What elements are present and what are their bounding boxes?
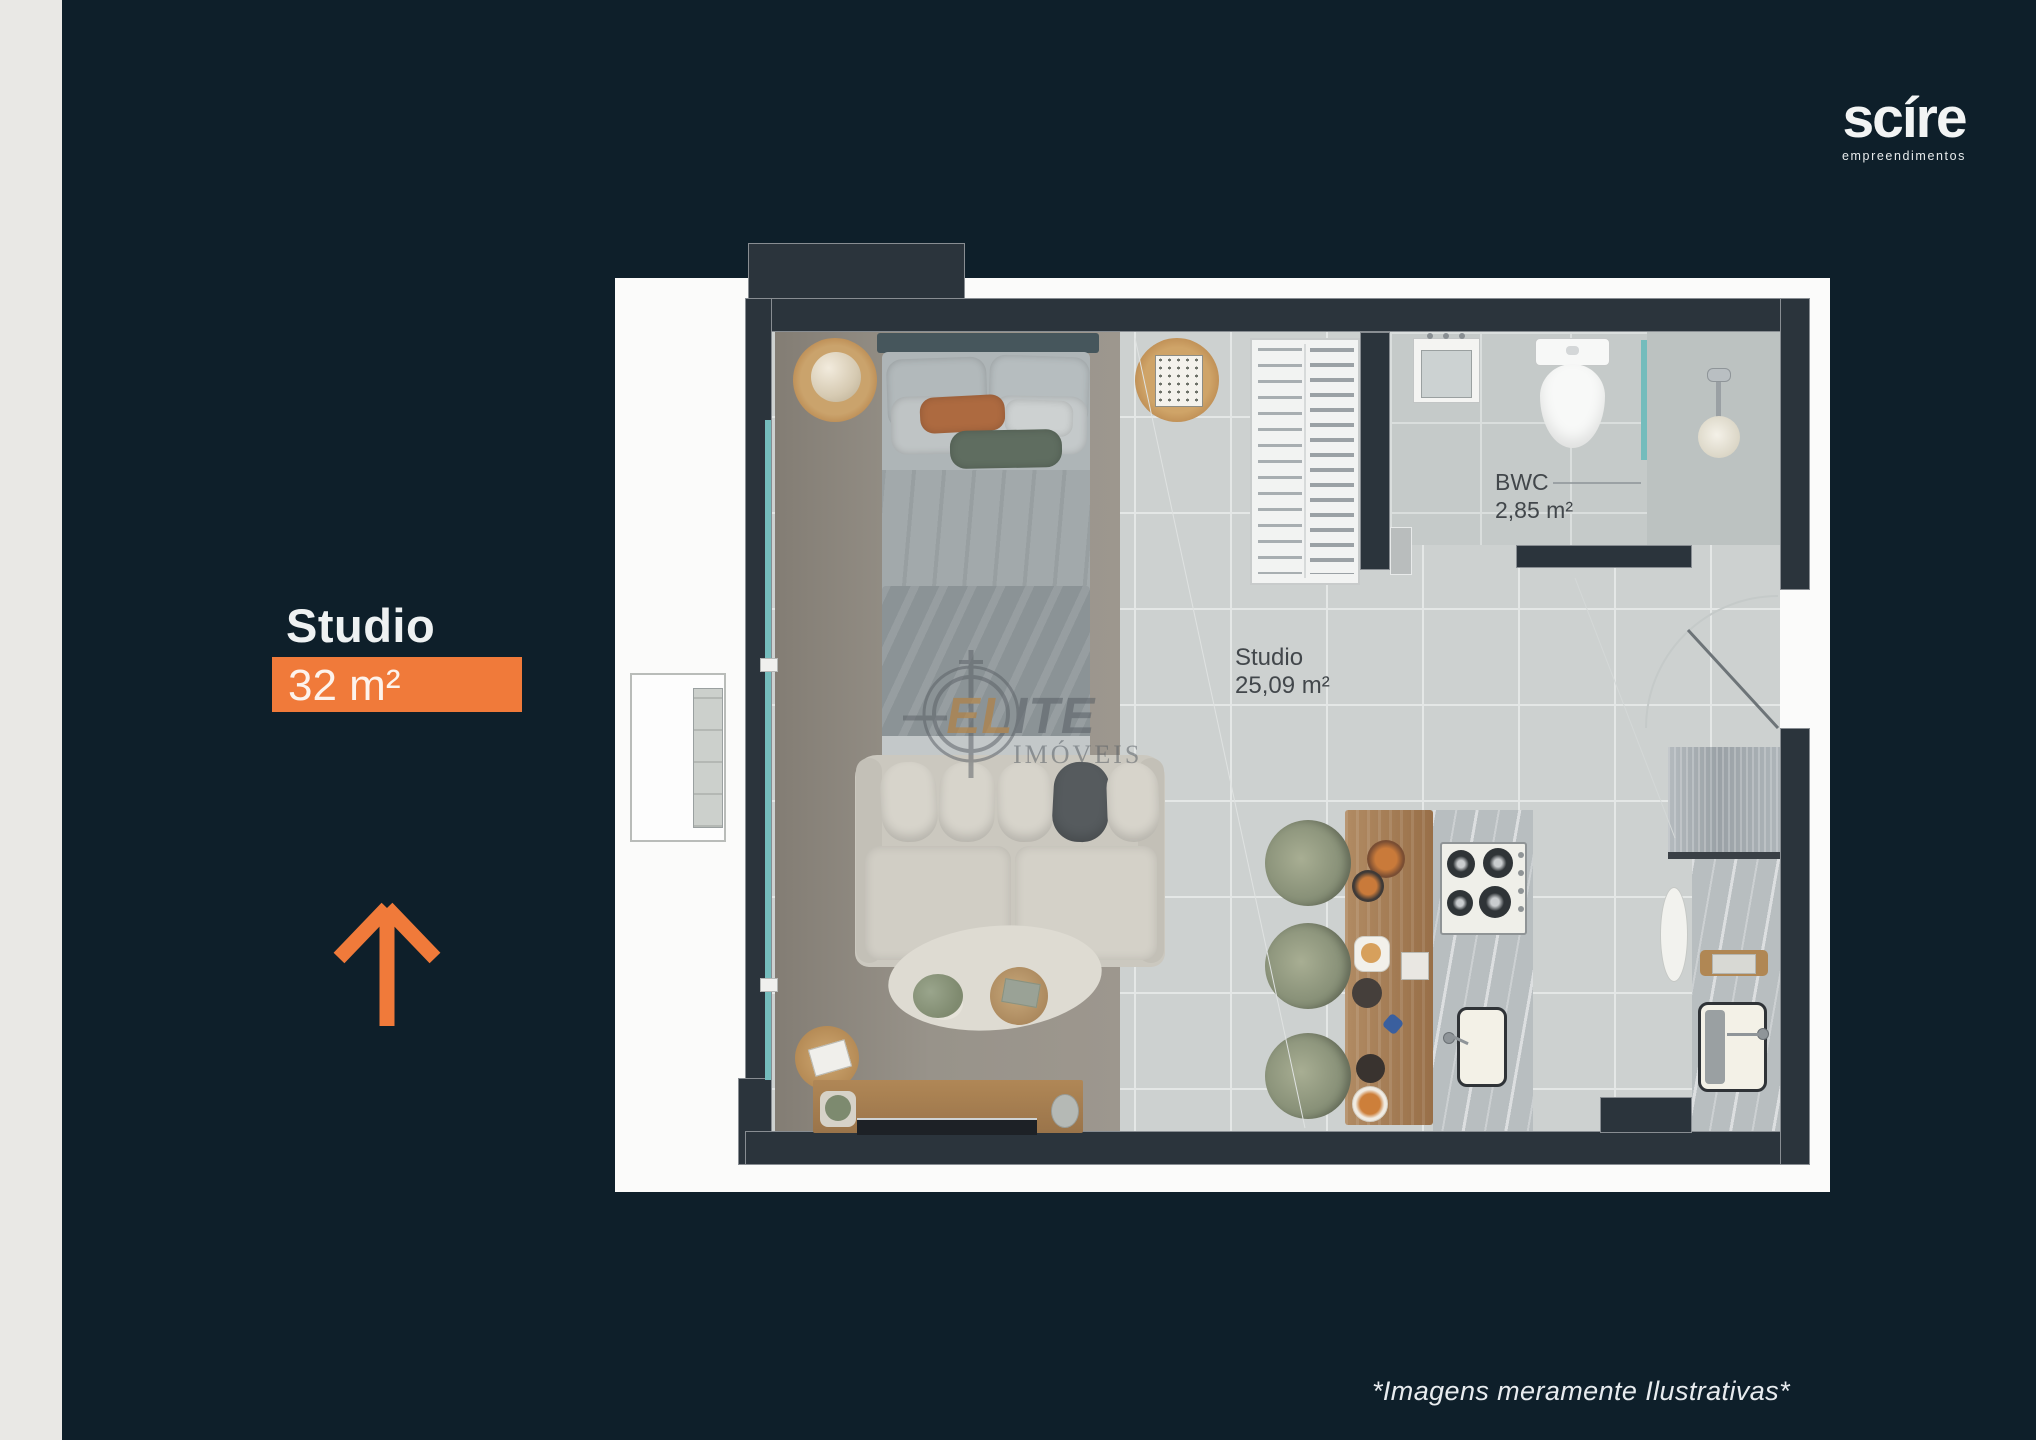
room-name: BWC	[1495, 468, 1573, 496]
brand-tagline: empreendimentos	[1824, 149, 1984, 163]
room-area: 25,09 m²	[1235, 672, 1330, 700]
unit-title: Studio	[286, 598, 435, 653]
unit-area-value: 32 m²	[288, 661, 522, 711]
plan-annotations	[615, 278, 1830, 1192]
unit-area-badge: 32 m²	[272, 657, 522, 712]
realtor-watermark: ELITE IMÓVEIS	[885, 638, 1185, 798]
left-accent-strip	[0, 0, 62, 1440]
disclaimer-text: *Imagens meramente Ilustrativas*	[1372, 1376, 1790, 1407]
room-name: Studio	[1235, 644, 1330, 672]
brand-logo: scíre empreendimentos	[1824, 88, 1984, 163]
room-area: 2,85 m²	[1495, 496, 1573, 524]
brand-name: scíre	[1824, 88, 1984, 148]
watermark-brand: ELITE	[942, 686, 1102, 745]
room-label-bwc: BWC 2,85 m²	[1495, 468, 1573, 524]
room-label-studio: Studio 25,09 m²	[1235, 644, 1330, 700]
slide: scíre empreendimentos Studio 32 m²	[0, 0, 2036, 1440]
watermark-subtitle: IMÓVEIS	[1013, 740, 1142, 770]
floor-plan: BWC 2,85 m² Studio 25,09 m² ELITE IMÓVEI…	[615, 278, 1830, 1192]
arrow-up-icon	[330, 894, 442, 1034]
